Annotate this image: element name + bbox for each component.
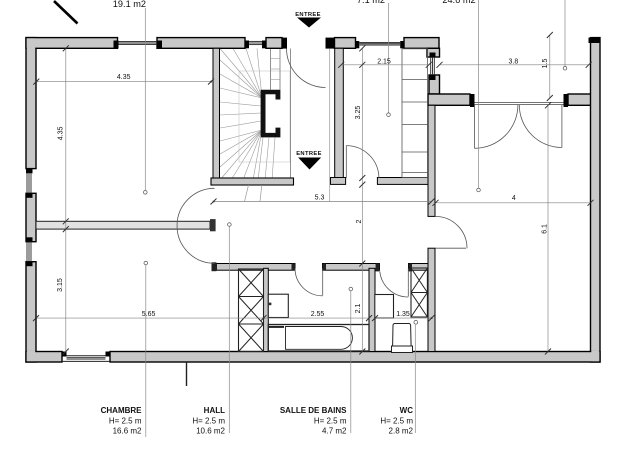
svg-text:6.1: 6.1 xyxy=(541,224,548,234)
svg-text:2.8 m2: 2.8 m2 xyxy=(389,426,414,435)
svg-text:5.65: 5.65 xyxy=(142,311,156,318)
svg-text:4.35: 4.35 xyxy=(117,74,131,81)
svg-text:19.1 m2: 19.1 m2 xyxy=(113,0,146,9)
svg-text:4.35: 4.35 xyxy=(58,126,65,140)
svg-text:10.6 m2: 10.6 m2 xyxy=(196,426,225,435)
svg-text:2: 2 xyxy=(356,219,363,223)
svg-text:2.55: 2.55 xyxy=(311,311,325,318)
svg-text:1.35: 1.35 xyxy=(396,311,410,318)
svg-text:1.5: 1.5 xyxy=(542,59,549,69)
svg-text:24.6 m2: 24.6 m2 xyxy=(442,0,475,5)
svg-text:2.1: 2.1 xyxy=(355,304,362,314)
svg-text:4.7 m2: 4.7 m2 xyxy=(322,426,347,435)
svg-text:3.25: 3.25 xyxy=(355,106,362,120)
svg-text:16.6 m2: 16.6 m2 xyxy=(113,426,142,435)
svg-text:4: 4 xyxy=(512,195,516,202)
svg-text:HALL: HALL xyxy=(204,406,225,415)
svg-text:3.8: 3.8 xyxy=(509,58,519,65)
svg-text:WC: WC xyxy=(400,406,414,415)
svg-text:ENTREE: ENTREE xyxy=(296,151,322,157)
svg-text:H= 2.5 m: H= 2.5 m xyxy=(380,416,413,425)
svg-text:H= 2.5 m: H= 2.5 m xyxy=(314,416,347,425)
svg-text:CHAMBRE: CHAMBRE xyxy=(101,406,143,415)
svg-text:7.1 m2: 7.1 m2 xyxy=(357,0,385,5)
svg-text:2.15: 2.15 xyxy=(377,58,391,65)
svg-text:H= 2.5 m: H= 2.5 m xyxy=(192,416,225,425)
svg-text:H= 2.5 m: H= 2.5 m xyxy=(109,416,142,425)
svg-text:3.15: 3.15 xyxy=(57,278,64,292)
svg-text:SALLE DE BAINS: SALLE DE BAINS xyxy=(280,406,347,415)
svg-text:5.3: 5.3 xyxy=(315,194,325,201)
svg-text:ENTREE: ENTREE xyxy=(295,12,321,18)
